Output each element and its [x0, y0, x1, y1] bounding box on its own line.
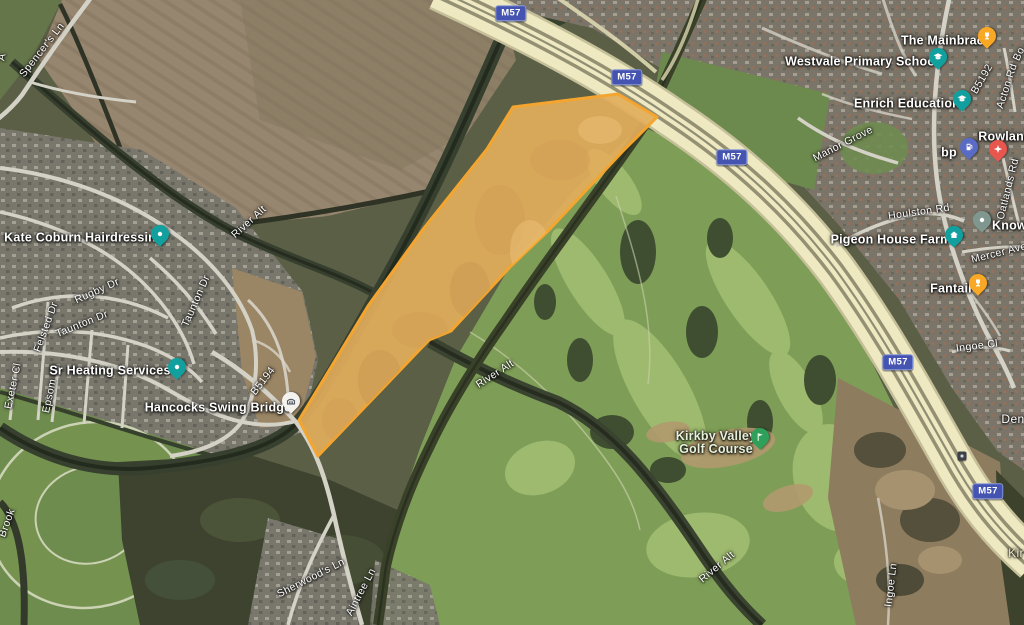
motorway-junction-badge: [958, 452, 967, 461]
trophy-icon: [969, 274, 987, 292]
dot-icon: [973, 211, 991, 229]
bar-pin-mainbrace[interactable]: [974, 23, 999, 48]
m57-route-shield: M57: [972, 483, 1003, 499]
place-pin-knowsley[interactable]: [969, 207, 994, 232]
satellite-map[interactable]: M57 M57 M57 M57 M57 Spencer's Ln A River…: [0, 0, 1024, 625]
dot-icon: [168, 358, 186, 376]
place-label-den-fragment: Den: [1001, 412, 1024, 426]
m57-route-shield: M57: [611, 69, 642, 85]
m57-route-shield: M57: [495, 5, 526, 21]
poi-label-pigeon-house-farm[interactable]: Pigeon House Farm: [831, 234, 952, 247]
bar-pin-fantail[interactable]: [965, 270, 990, 295]
poi-label-kirkby-valley-golf-course[interactable]: Kirkby Valley Golf Course: [676, 430, 756, 456]
poi-label-hancocks-swing-bridge[interactable]: Hancocks Swing Bridge: [145, 402, 292, 415]
starburst-icon: [989, 140, 1007, 158]
poi-label-bp[interactable]: bp: [941, 147, 957, 160]
poi-label-sr-heating-services[interactable]: Sr Heating Services: [49, 365, 170, 378]
school-pin-enrich[interactable]: [949, 86, 974, 111]
m57-route-shield: M57: [882, 354, 913, 370]
poi-label-kate-coburn-hairdressing[interactable]: Kate Coburn Hairdressing: [4, 232, 164, 245]
graduation-cap-icon: [953, 90, 971, 108]
fuel-pin-bp[interactable]: [956, 134, 981, 159]
satellite-imagery: [0, 0, 1024, 625]
pharmacy-pin-rowland[interactable]: [985, 136, 1010, 161]
road-label-fragment-left-edge: A: [0, 52, 9, 62]
farm-pin-pigeon-house[interactable]: [941, 222, 966, 247]
m57-route-shield: M57: [716, 149, 747, 165]
golf-label-line2: Golf Course: [676, 443, 756, 456]
golf-flag-icon: [751, 428, 769, 446]
hairdresser-pin[interactable]: [147, 221, 172, 246]
place-label-kir-fragment: Kir: [1008, 546, 1024, 560]
trophy-icon: [978, 27, 996, 45]
poi-label-fantail[interactable]: Fantail: [930, 283, 972, 296]
swing-bridge-pin[interactable]: [278, 388, 303, 413]
poi-label-westvale-primary-school[interactable]: Westvale Primary School: [785, 56, 939, 69]
business-pin[interactable]: [164, 354, 189, 379]
house-icon: [945, 226, 963, 244]
dot-icon: [151, 225, 169, 243]
graduation-cap-icon: [929, 48, 947, 66]
poi-label-knowsley-fragment[interactable]: Knows: [992, 220, 1024, 233]
fuel-pump-icon: [960, 138, 978, 156]
school-pin-westvale[interactable]: [925, 44, 950, 69]
bridge-icon: [282, 392, 300, 410]
poi-label-enrich-education[interactable]: Enrich Education: [854, 98, 960, 111]
golf-pin-kirkby-valley[interactable]: [747, 424, 772, 449]
